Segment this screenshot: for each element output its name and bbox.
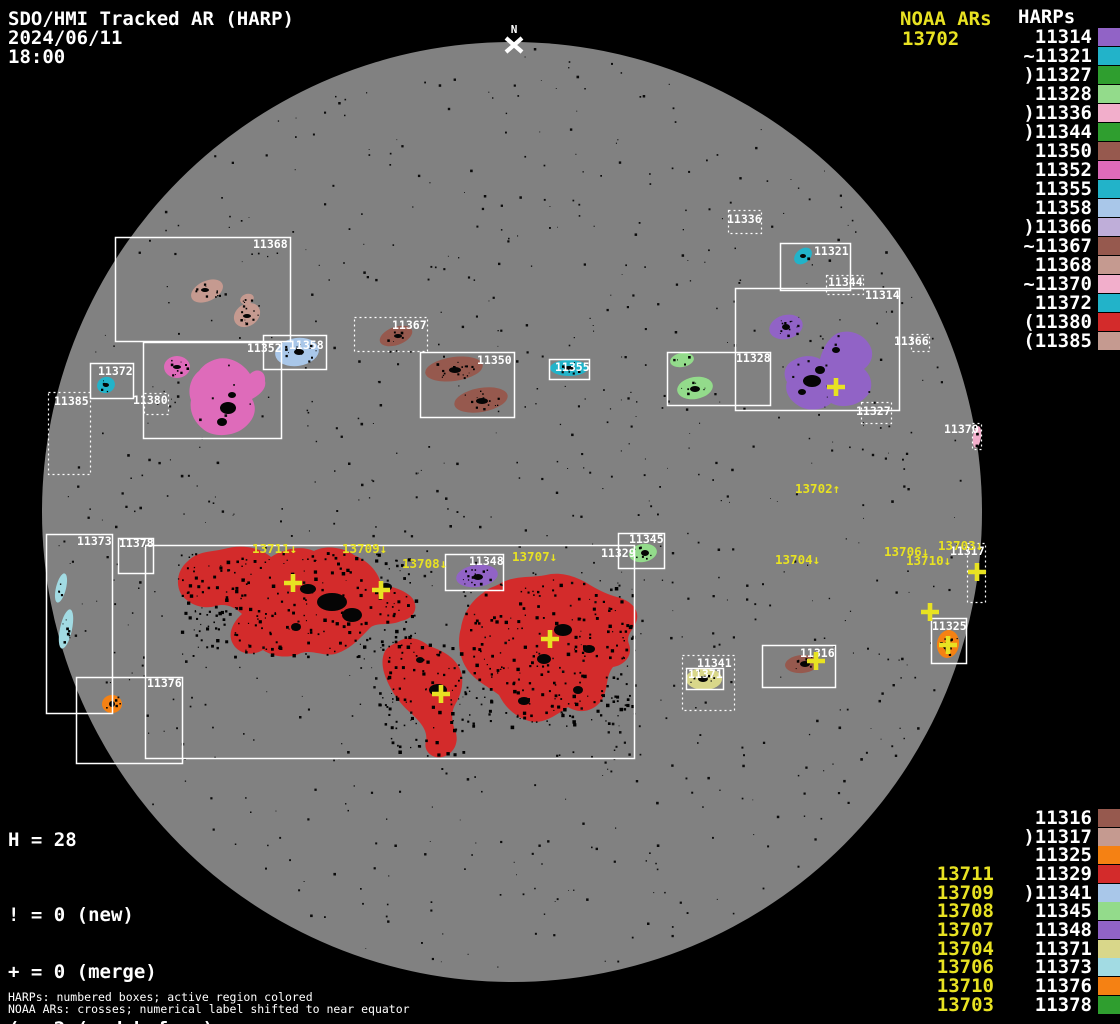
- harp-box-label-11344: 11344: [828, 275, 863, 289]
- noaa-legend-13703: 13703: [937, 996, 994, 1015]
- harp-color-swatch-11329: [1098, 865, 1120, 883]
- harp-color-swatch-11321: [1098, 47, 1120, 65]
- harp-color-swatch-11373: [1098, 958, 1120, 976]
- sunspot-umbra: [800, 254, 806, 258]
- solar-disk: [42, 42, 982, 982]
- harp-box-label-11372: 11372: [98, 364, 133, 378]
- sunspot-umbra: [220, 402, 236, 414]
- harp-color-swatch-11345: [1098, 902, 1120, 920]
- sunspot-umbra: [217, 418, 227, 426]
- sunspot-umbra: [641, 550, 649, 556]
- harp-box-label-11355: 11355: [555, 360, 590, 374]
- harp-color-swatch-11344: [1098, 123, 1120, 141]
- sunspot-umbra: [291, 623, 301, 631]
- harp-color-swatch-11316: [1098, 809, 1120, 827]
- sunspot-umbra: [782, 324, 790, 330]
- harp-box-label-11327: 11327: [856, 404, 891, 418]
- harp-box-label-11348: 11348: [469, 554, 504, 568]
- legend-new: ! = 0 (new): [8, 906, 225, 925]
- harp-color-swatch-11327: [1098, 66, 1120, 84]
- harp-color-swatch-11372: [1098, 294, 1120, 312]
- sunspot-umbra: [583, 645, 595, 653]
- legend-pad-before: ( = 2 (pad before): [8, 1020, 225, 1024]
- sunspot-umbra: [243, 314, 251, 318]
- harp-box-label-11366: 11366: [894, 334, 929, 348]
- harp-box-label-11314: 11314: [865, 288, 900, 302]
- legend-merge: + = 0 (merge): [8, 963, 225, 982]
- harp-color-swatch-11380: [1098, 313, 1120, 331]
- harp-color-swatch-11376: [1098, 977, 1120, 995]
- sunspot-umbra: [537, 654, 551, 664]
- sunspot-umbra: [690, 386, 700, 392]
- harp-box-label-11329: 11329: [601, 546, 636, 560]
- noaa-label-13704: 13704↓: [775, 552, 820, 567]
- sunspot-umbra: [416, 657, 424, 663]
- harp-box-label-11352: 11352: [247, 341, 282, 355]
- sunspot-umbra: [518, 697, 530, 705]
- harp-box-label-11325: 11325: [932, 619, 967, 633]
- harp-box-label-11378: 11378: [119, 536, 154, 550]
- harp-box-label-11321: 11321: [814, 244, 849, 258]
- sunspot-umbra: [476, 398, 488, 404]
- harp-color-swatch-11317: [1098, 828, 1120, 846]
- sunspot-umbra: [394, 334, 402, 338]
- harp-color-swatch-11336: [1098, 104, 1120, 122]
- sunspot-umbra: [300, 584, 316, 594]
- harp-box-label-11373: 11373: [77, 534, 112, 548]
- harp-color-swatch-11378: [1098, 996, 1120, 1014]
- sunspot-umbra: [449, 367, 461, 373]
- north-marker: N: [506, 23, 522, 52]
- noaa-label-13709: 13709↓: [342, 541, 387, 556]
- sunspot-umbra: [798, 389, 806, 395]
- harp-color-swatch-11367: [1098, 237, 1120, 255]
- harp-box-label-11371: 11371: [688, 667, 723, 681]
- harp-legend-top-11385: (11385: [1023, 332, 1092, 351]
- harp-color-swatch-11370: [1098, 275, 1120, 293]
- harp-box-label-11380: 11380: [133, 393, 168, 407]
- disk-layer: [42, 42, 982, 982]
- sunspot-umbra: [473, 574, 483, 580]
- harp-box-label-11336: 11336: [727, 212, 762, 226]
- noaa-label-13711: 13711↓: [252, 541, 297, 556]
- harp-box-label-11376: 11376: [147, 676, 182, 690]
- harps-header: HARPs: [1018, 8, 1075, 27]
- sunspot-umbra: [201, 288, 209, 292]
- harp-legend-bottom-11378: 11378: [1035, 996, 1092, 1015]
- harp-full-disk-plot: 1136811352113581137211385113801136711350…: [0, 0, 1120, 1024]
- sunspot-umbra: [342, 608, 362, 622]
- sunspot-umbra: [573, 686, 583, 694]
- sunspot-umbra: [815, 366, 825, 374]
- sunspot-umbra: [832, 347, 840, 353]
- noaa-label-13702: 13702↑: [795, 481, 840, 496]
- harp-box-label-11350: 11350: [477, 353, 512, 367]
- harp-count: H = 28: [8, 831, 77, 850]
- harp-box-label-11345: 11345: [629, 532, 664, 546]
- noaa-ars-header: NOAA ARs: [900, 10, 992, 29]
- noaa-label-13707: 13707↓: [512, 549, 557, 564]
- harp-color-swatch-11325: [1098, 846, 1120, 864]
- harp-box-label-11385: 11385: [54, 394, 89, 408]
- caption-noaa: NOAA ARs: crosses; numerical label shift…: [8, 1003, 410, 1015]
- harp-box-label-11367: 11367: [392, 318, 427, 332]
- harp-color-swatch-11350: [1098, 142, 1120, 160]
- harp-color-swatch-11358: [1098, 199, 1120, 217]
- sunspot-umbra: [803, 375, 821, 387]
- harp-color-swatch-11385: [1098, 332, 1120, 350]
- harp-box-label-11370: 11370: [944, 422, 979, 436]
- harp-color-swatch-11341: [1098, 884, 1120, 902]
- harp-color-swatch-11366: [1098, 218, 1120, 236]
- north-marker-label: N: [511, 23, 518, 36]
- noaa-label-13710: 13710↓: [906, 553, 951, 568]
- plot-time: 18:00: [8, 48, 65, 67]
- harp-color-swatch-11314: [1098, 28, 1120, 46]
- harp-color-swatch-11355: [1098, 180, 1120, 198]
- harp-box-label-11328: 11328: [736, 351, 771, 365]
- noaa-label-13703: 13703↓: [938, 538, 983, 553]
- sunspot-umbra: [103, 383, 109, 387]
- harp-color-swatch-11348: [1098, 921, 1120, 939]
- noaa-label-13708: 13708↓: [402, 556, 447, 571]
- sunspot-umbra: [228, 392, 236, 398]
- harp-box-label-11368: 11368: [253, 237, 288, 251]
- sunspot-umbra: [554, 624, 572, 636]
- noaa-ar-top-item: 13702: [902, 30, 959, 49]
- harp-color-swatch-11368: [1098, 256, 1120, 274]
- sunspot-umbra: [173, 365, 181, 369]
- harp-color-swatch-11371: [1098, 940, 1120, 958]
- harp-color-swatch-11328: [1098, 85, 1120, 103]
- harp-color-swatch-11352: [1098, 161, 1120, 179]
- harp-box-label-11358: 11358: [289, 338, 324, 352]
- sunspot-umbra: [317, 593, 347, 611]
